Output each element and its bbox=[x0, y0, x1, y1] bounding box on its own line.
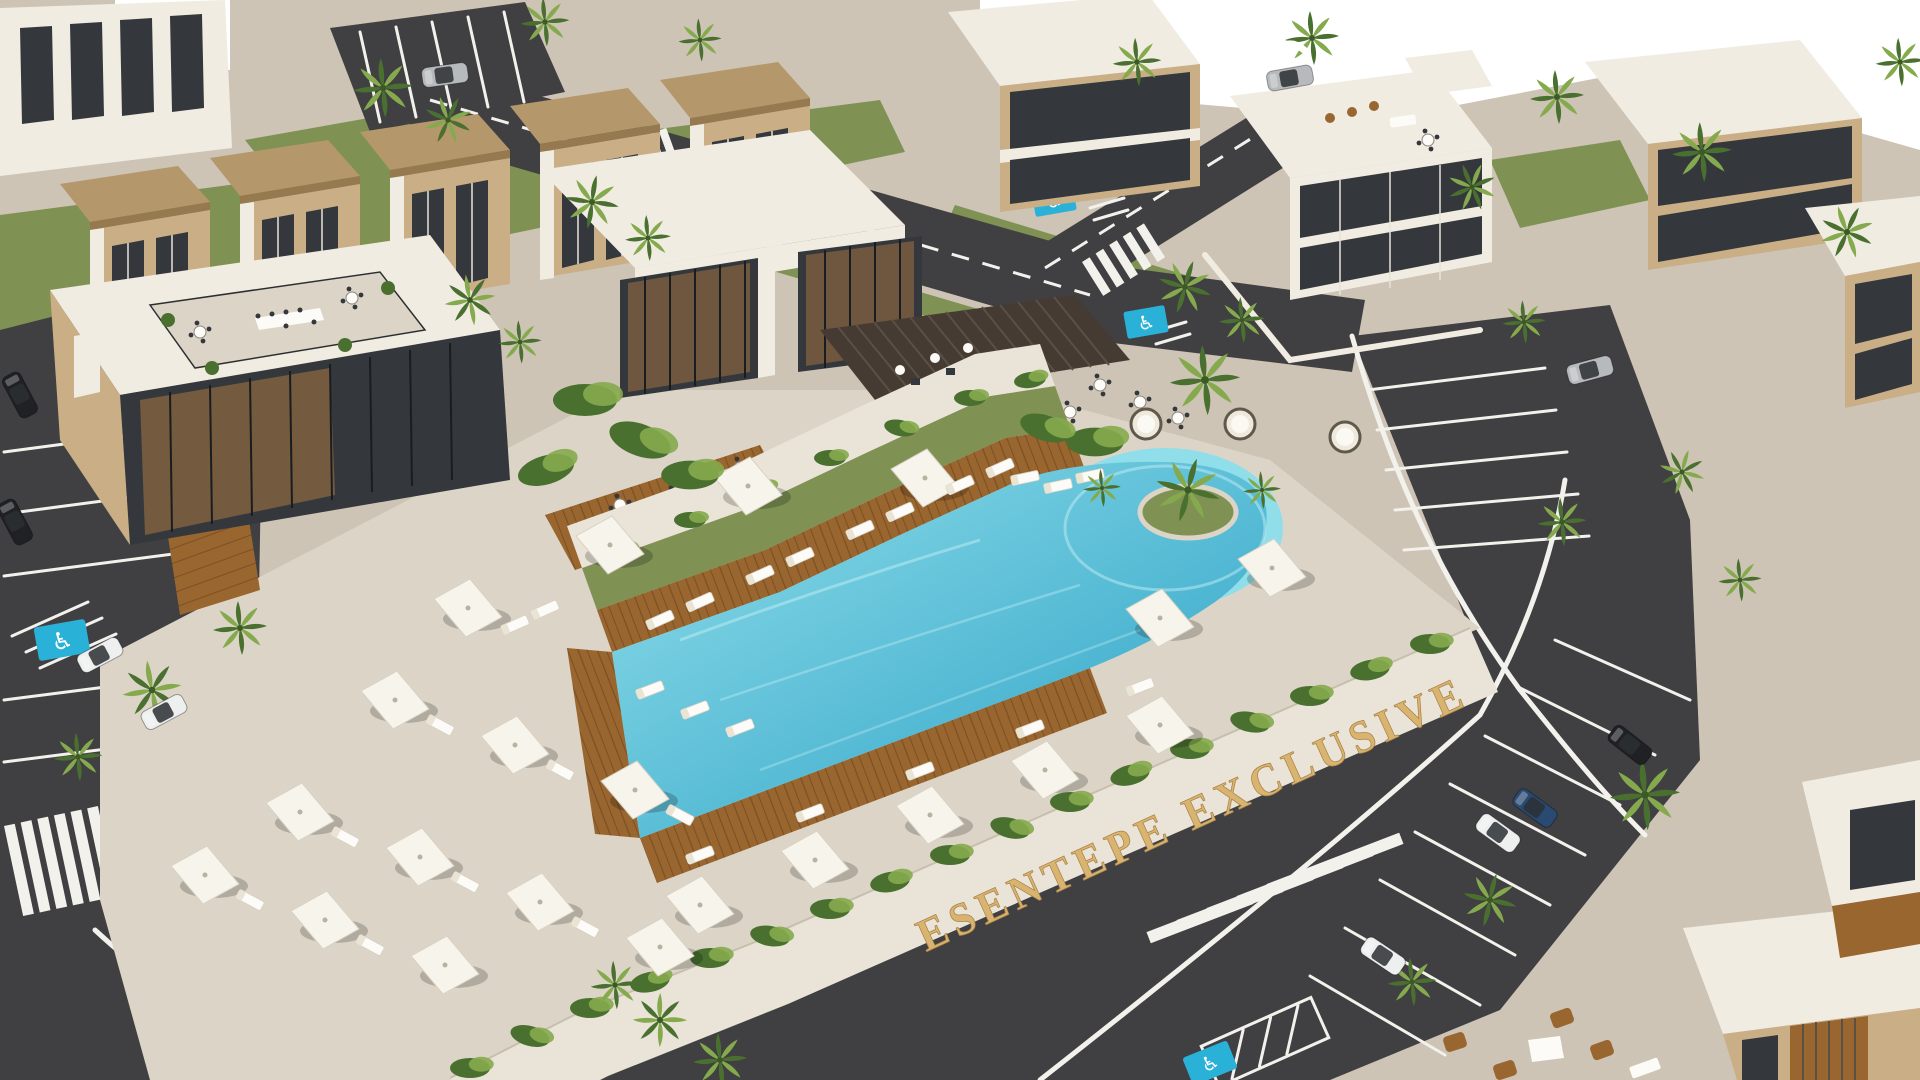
window bbox=[74, 332, 100, 398]
resort-aerial-render: ♿ ♿ ♿ ♿ bbox=[0, 0, 1920, 1080]
pier bbox=[758, 255, 775, 378]
